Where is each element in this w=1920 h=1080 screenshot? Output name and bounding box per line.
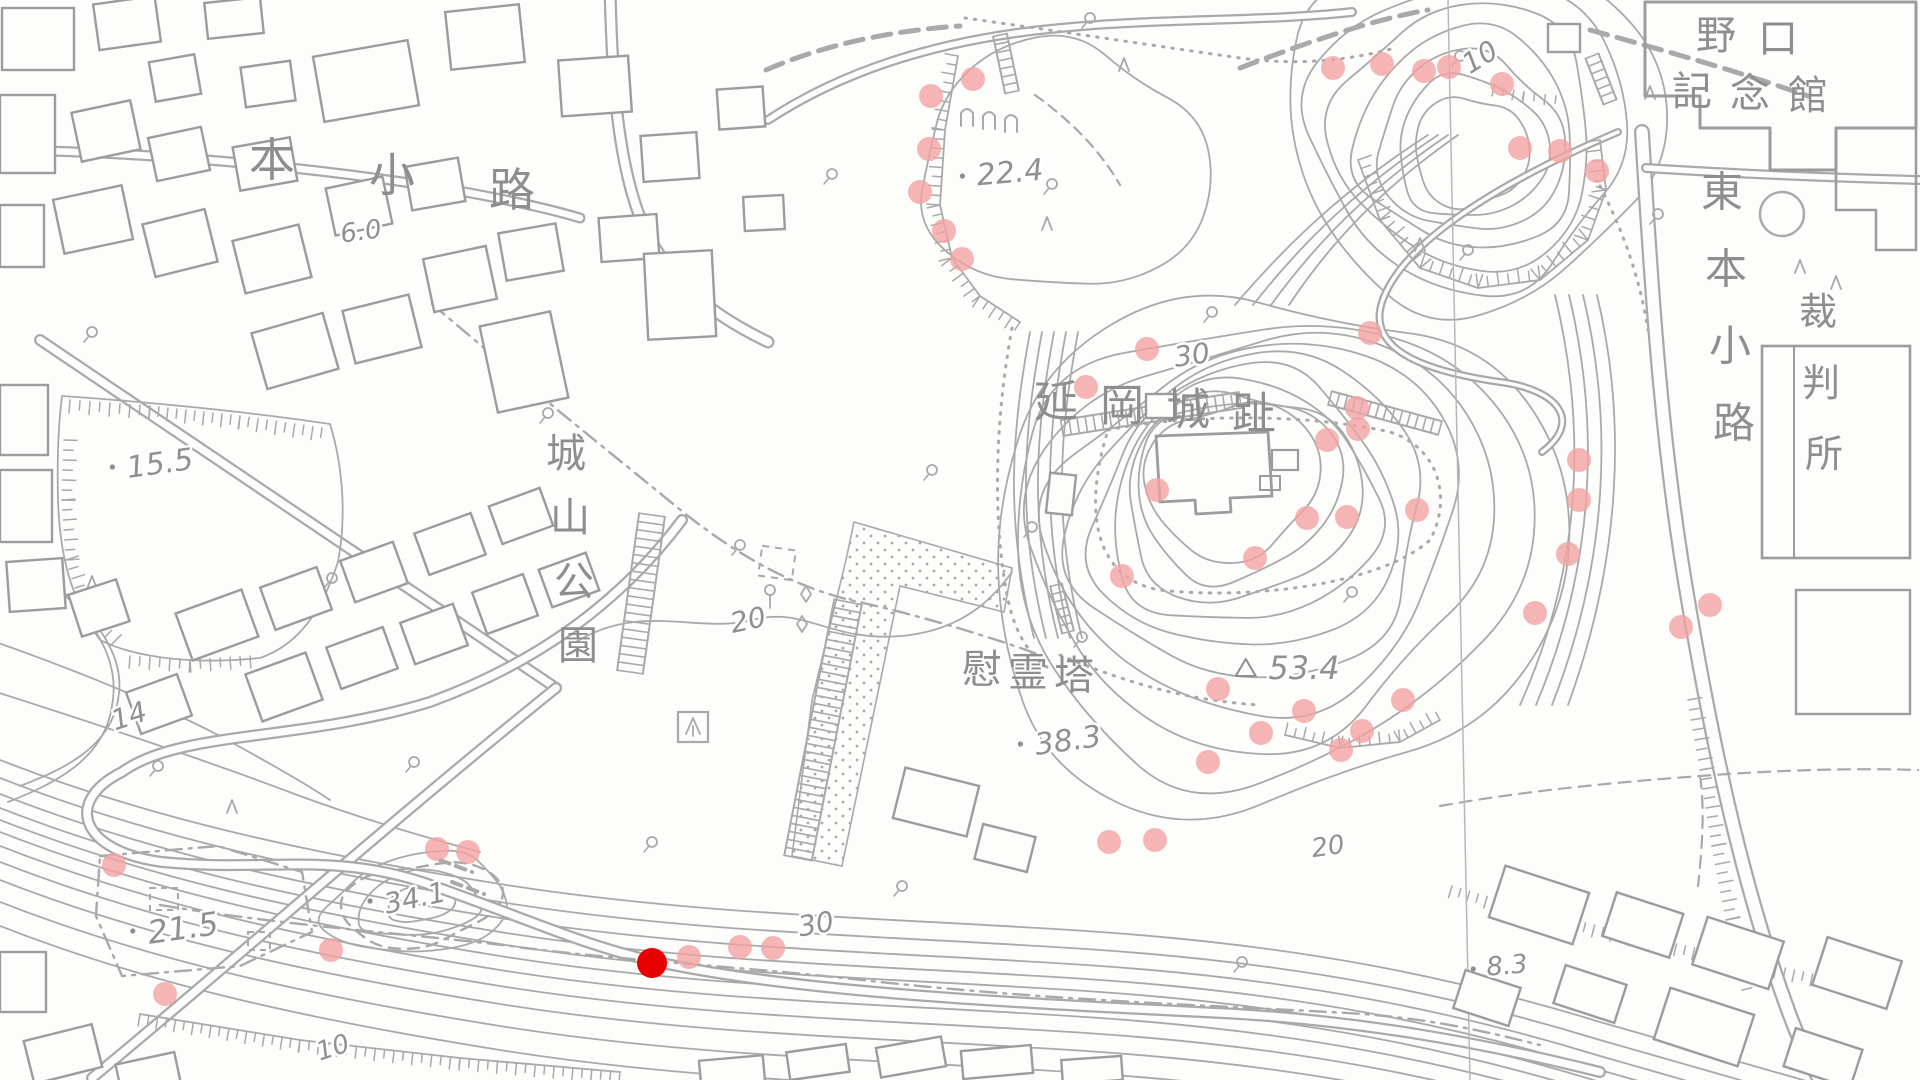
place-label-nobeoka-joshi: 延 [1034, 377, 1078, 428]
poi-dot-pink[interactable] [1358, 321, 1382, 345]
poi-dot-pink[interactable] [102, 853, 126, 877]
elevation-label: 6.0 [338, 214, 383, 249]
place-label-higashi-hon-koji: 本 [1705, 245, 1747, 294]
poi-dot-pink[interactable] [1391, 688, 1415, 712]
poi-dot-pink[interactable] [1249, 721, 1273, 745]
place-label-shiroyama-koen: 公 [554, 559, 594, 605]
poi-dot-pink[interactable] [456, 840, 480, 864]
place-label-higashi-hon-koji: 東 [1701, 168, 1743, 217]
poi-dot-pink[interactable] [153, 982, 177, 1006]
poi-dot-pink[interactable] [1097, 830, 1121, 854]
poi-dot-pink[interactable] [1196, 750, 1220, 774]
elevation-label: 22.4 [975, 153, 1045, 194]
place-label-hon-koji: 小 [369, 148, 415, 202]
poi-dot-pink[interactable] [961, 67, 985, 91]
elevation-label: 8.3 [1485, 949, 1529, 982]
poi-dot-pink[interactable] [1329, 738, 1353, 762]
poi-dot-pink[interactable] [1350, 719, 1374, 743]
poi-dot-pink[interactable] [1556, 542, 1580, 566]
poi-dot-pink[interactable] [919, 84, 943, 108]
poi-dot-pink[interactable] [319, 938, 343, 962]
poi-dot-pink[interactable] [728, 935, 752, 959]
poi-dot-pink[interactable] [1315, 428, 1339, 452]
poi-dot-pink[interactable] [1370, 52, 1394, 76]
poi-dot-pink[interactable] [1295, 506, 1319, 530]
poi-dot-pink[interactable] [1321, 56, 1345, 80]
place-label-noguchi-line2: 館 [1788, 73, 1828, 119]
poi-dot-pink[interactable] [1346, 417, 1370, 441]
poi-dot-pink[interactable] [677, 945, 701, 969]
poi-dot-pink[interactable] [1243, 546, 1267, 570]
place-label-ireito: 慰 [962, 647, 1002, 693]
poi-dot-pink[interactable] [1335, 505, 1359, 529]
poi-dot-pink[interactable] [1669, 615, 1693, 639]
poi-dot-pink[interactable] [1698, 593, 1722, 617]
place-label-ireito: 塔 [1054, 653, 1094, 699]
poi-dot-pink[interactable] [425, 837, 449, 861]
place-label-shiroyama-koen: 山 [550, 495, 590, 541]
poi-dot-pink[interactable] [917, 137, 941, 161]
place-label-nobeoka-joshi: 城 [1166, 385, 1210, 436]
place-label-higashi-hon-koji: 小 [1709, 322, 1751, 371]
poi-dot-pink[interactable] [1292, 699, 1316, 723]
poi-dot-pink[interactable] [1567, 488, 1591, 512]
poi-dot-pink[interactable] [1143, 828, 1167, 852]
place-label-nobeoka-joshi: 趾 [1232, 389, 1276, 440]
elevation-label: 20 [1310, 830, 1347, 864]
place-label-noguchi-line2: 念 [1730, 71, 1770, 117]
poi-dot-pink[interactable] [1585, 159, 1609, 183]
place-label-saibansho: 裁 [1799, 290, 1837, 334]
poi-dot-pink[interactable] [932, 219, 956, 243]
place-label-nobeoka-joshi: 岡 [1100, 381, 1144, 432]
place-label-noguchi-line2: 記 [1672, 69, 1712, 115]
poi-dot-pink[interactable] [1567, 448, 1591, 472]
place-label-shiroyama-koen: 城 [546, 431, 586, 477]
place-label-ireito: 霊 [1008, 650, 1048, 696]
poi-dot-pink[interactable] [1206, 677, 1230, 701]
poi-dot-pink[interactable] [1145, 478, 1169, 502]
poi-dot-red-selected[interactable] [637, 948, 667, 978]
elevation-label: 53.4 [1268, 649, 1339, 687]
place-label-higashi-hon-koji: 路 [1713, 399, 1755, 448]
map-svg[interactable]: 本小路城山公園延岡城趾慰霊塔野口記念館東本小路裁判所6.022.415.5142… [0, 0, 1920, 1080]
poi-dot-pink[interactable] [1437, 55, 1461, 79]
poi-dot-pink[interactable] [1405, 498, 1429, 522]
poi-dot-pink[interactable] [1110, 564, 1134, 588]
poi-dot-pink[interactable] [1548, 139, 1572, 163]
poi-dot-pink[interactable] [1523, 601, 1547, 625]
poi-dot-pink[interactable] [761, 936, 785, 960]
place-label-noguchi-line1: 野 [1696, 13, 1736, 59]
place-label-saibansho: 所 [1805, 432, 1843, 476]
place-label-hon-koji: 本 [249, 133, 295, 187]
place-label-saibansho: 判 [1802, 361, 1840, 405]
elevation-label: 30 [796, 905, 837, 944]
place-label-shiroyama-koen: 園 [558, 623, 598, 669]
place-label-noguchi-line1: 口 [1758, 16, 1798, 62]
poi-dot-pink[interactable] [1074, 375, 1098, 399]
poi-dot-pink[interactable] [1135, 337, 1159, 361]
poi-dot-pink[interactable] [950, 247, 974, 271]
elevation-label: 30 [1172, 336, 1212, 374]
topo-map-canvas[interactable]: 本小路城山公園延岡城趾慰霊塔野口記念館東本小路裁判所6.022.415.5142… [0, 0, 1920, 1080]
poi-dot-pink[interactable] [908, 180, 932, 204]
place-label-hon-koji: 路 [489, 163, 535, 217]
poi-dot-pink[interactable] [1345, 396, 1369, 420]
poi-dot-pink[interactable] [1490, 72, 1514, 96]
poi-dot-pink[interactable] [1412, 59, 1436, 83]
poi-dot-pink[interactable] [1508, 136, 1532, 160]
